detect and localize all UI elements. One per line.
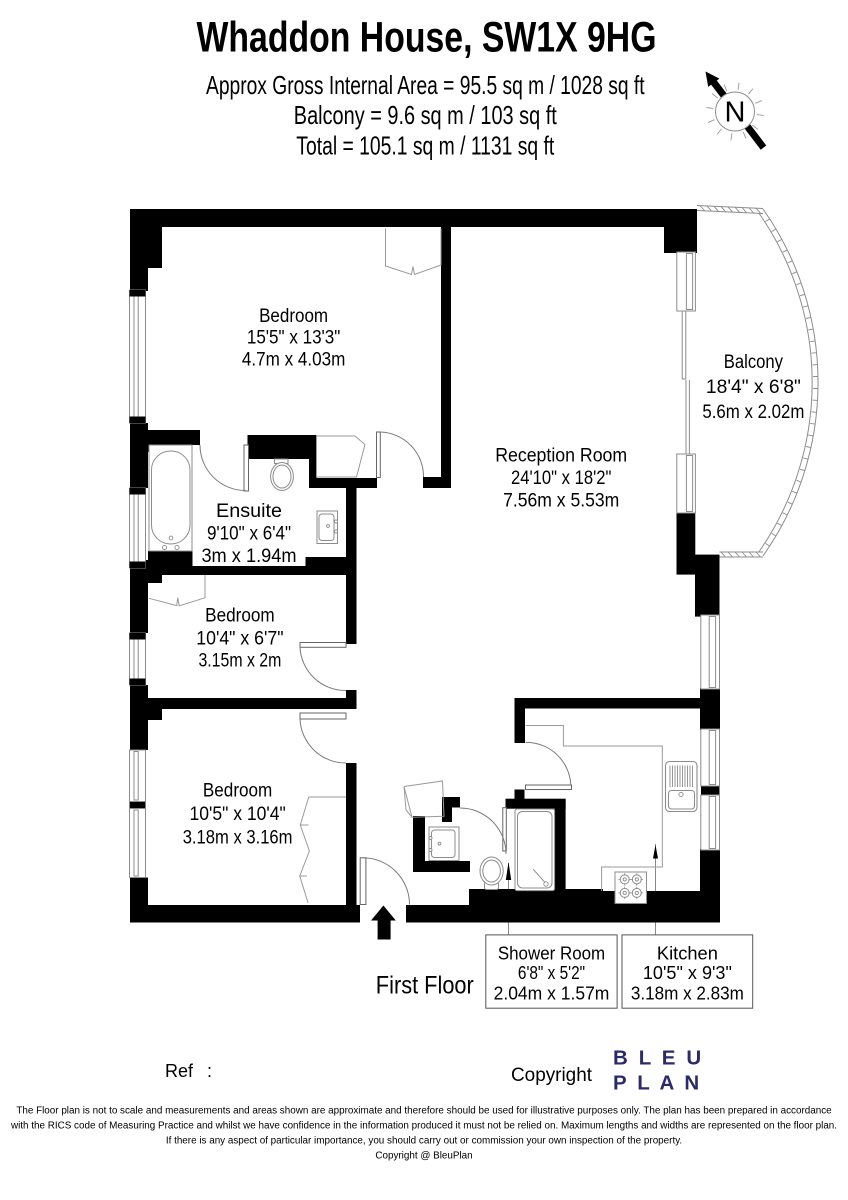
svg-text:Whaddon House, SW1X 9HG: Whaddon House, SW1X 9HG <box>197 15 657 62</box>
svg-text:Bedroom: Bedroom <box>205 606 275 627</box>
svg-text:Bedroom: Bedroom <box>203 780 272 801</box>
svg-text:10'4" x 6'7": 10'4" x 6'7" <box>196 628 283 649</box>
svg-text:The Floor plan is not to scale: The Floor plan is not to scale and measu… <box>16 1106 832 1117</box>
svg-text:Balcony = 9.6 sq m / 103 sq ft: Balcony = 9.6 sq m / 103 sq ft <box>294 100 558 130</box>
svg-text:9'10" x 6'4": 9'10" x 6'4" <box>207 524 291 545</box>
svg-text:7.56m x 5.53m: 7.56m x 5.53m <box>503 491 619 512</box>
svg-text:Balcony: Balcony <box>724 352 784 373</box>
svg-text:P L A N: P L A N <box>613 1072 702 1095</box>
svg-text:Kitchen: Kitchen <box>657 944 718 964</box>
svg-text:18'4" x 6'8": 18'4" x 6'8" <box>706 377 801 398</box>
svg-text:15'5" x 13'3": 15'5" x 13'3" <box>247 328 341 349</box>
svg-text:If there is any aspect of part: If there is any aspect of particular imp… <box>166 1136 682 1147</box>
svg-text:Bedroom: Bedroom <box>259 306 328 327</box>
svg-text:4.7m x 4.03m: 4.7m x 4.03m <box>242 349 346 370</box>
svg-text:Shower Room: Shower Room <box>498 944 605 964</box>
svg-text:Ref: Ref <box>165 1061 194 1081</box>
svg-text:Total = 105.1 sq m / 1131 sq f: Total = 105.1 sq m / 1131 sq ft <box>296 131 555 161</box>
svg-text:3.18m x 3.16m: 3.18m x 3.16m <box>183 828 293 849</box>
svg-text:B L E U: B L E U <box>613 1047 704 1070</box>
svg-text:10'5" x 9'3": 10'5" x 9'3" <box>643 963 732 983</box>
svg-text:24'10" x 18'2": 24'10" x 18'2" <box>511 468 611 489</box>
svg-text:First Floor: First Floor <box>376 971 474 999</box>
svg-text:Copyright @ BleuPlan: Copyright @ BleuPlan <box>375 1151 472 1162</box>
svg-text:3.15m x 2m: 3.15m x 2m <box>198 651 281 672</box>
svg-text:6'8" x 5'2": 6'8" x 5'2" <box>518 963 585 983</box>
svg-text:2.04m x 1.57m: 2.04m x 1.57m <box>494 984 610 1004</box>
svg-text:Copyright: Copyright <box>511 1065 593 1086</box>
svg-text:with the RICS code of Measurin: with the RICS code of Measuring Practice… <box>10 1121 837 1132</box>
svg-text:5.6m x 2.02m: 5.6m x 2.02m <box>702 402 804 423</box>
svg-text::: : <box>207 1061 212 1081</box>
svg-text:3m x 1.94m: 3m x 1.94m <box>201 546 296 567</box>
svg-text:Ensuite: Ensuite <box>216 501 282 522</box>
svg-text:3.18m x 2.83m: 3.18m x 2.83m <box>631 984 744 1004</box>
svg-text:Approx Gross Internal Area = 9: Approx Gross Internal Area = 95.5 sq m /… <box>206 70 645 100</box>
svg-text:Reception Room: Reception Room <box>495 446 627 467</box>
svg-text:10'5" x 10'4": 10'5" x 10'4" <box>189 804 285 825</box>
svg-text:N: N <box>725 97 746 129</box>
